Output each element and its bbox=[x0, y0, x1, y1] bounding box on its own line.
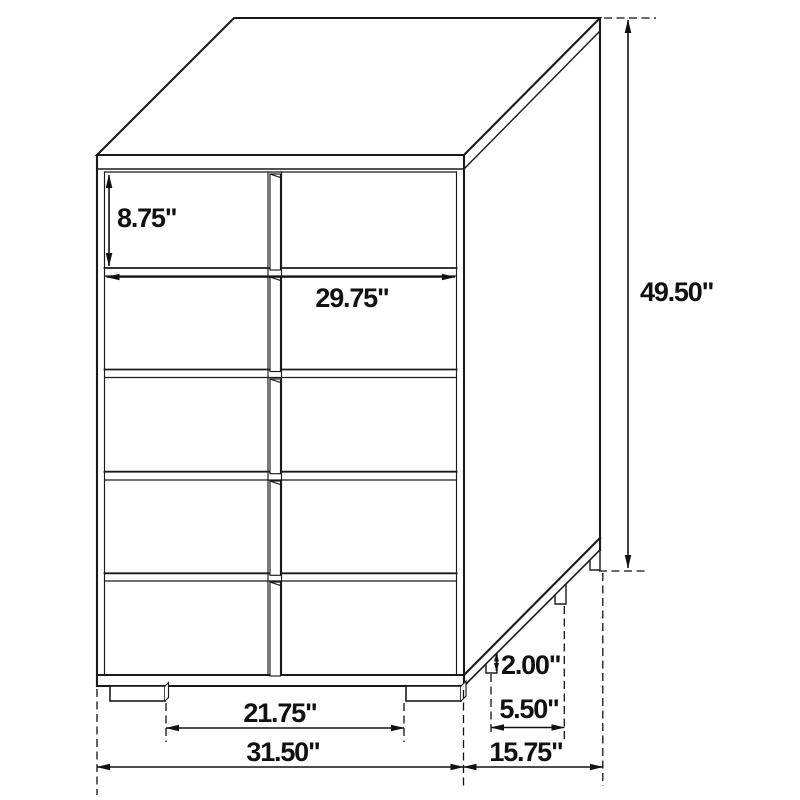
drawer-handle bbox=[270, 582, 281, 676]
label-overall-width: 31.50" bbox=[246, 737, 320, 767]
label-top-drawer-height: 8.75" bbox=[117, 203, 177, 233]
label-front-leg-spacing: 21.75" bbox=[243, 698, 317, 728]
label-leg-height: 2.00" bbox=[501, 650, 561, 680]
drawer-handles bbox=[270, 174, 281, 676]
drawer-handle bbox=[270, 481, 281, 575]
front-leg-left-side bbox=[165, 683, 169, 702]
dimension-diagram-canvas: 8.75" 29.75" 49.50" 2.00" 5.50" 21.75" 3… bbox=[0, 0, 800, 800]
drawer-handle bbox=[270, 379, 281, 474]
background bbox=[0, 0, 800, 800]
label-drawer-front-width: 29.75" bbox=[315, 283, 389, 313]
label-overall-depth: 15.75" bbox=[489, 737, 563, 767]
front-leg-left bbox=[110, 686, 165, 701]
chest-dimension-diagram: 8.75" 29.75" 49.50" 2.00" 5.50" 21.75" 3… bbox=[0, 0, 800, 800]
drawer-handle bbox=[270, 277, 281, 372]
drawer-handle bbox=[270, 174, 281, 270]
label-side-leg-spacing: 5.50" bbox=[499, 694, 559, 724]
label-overall-height: 49.50" bbox=[640, 277, 714, 307]
front-leg-right bbox=[406, 686, 461, 701]
